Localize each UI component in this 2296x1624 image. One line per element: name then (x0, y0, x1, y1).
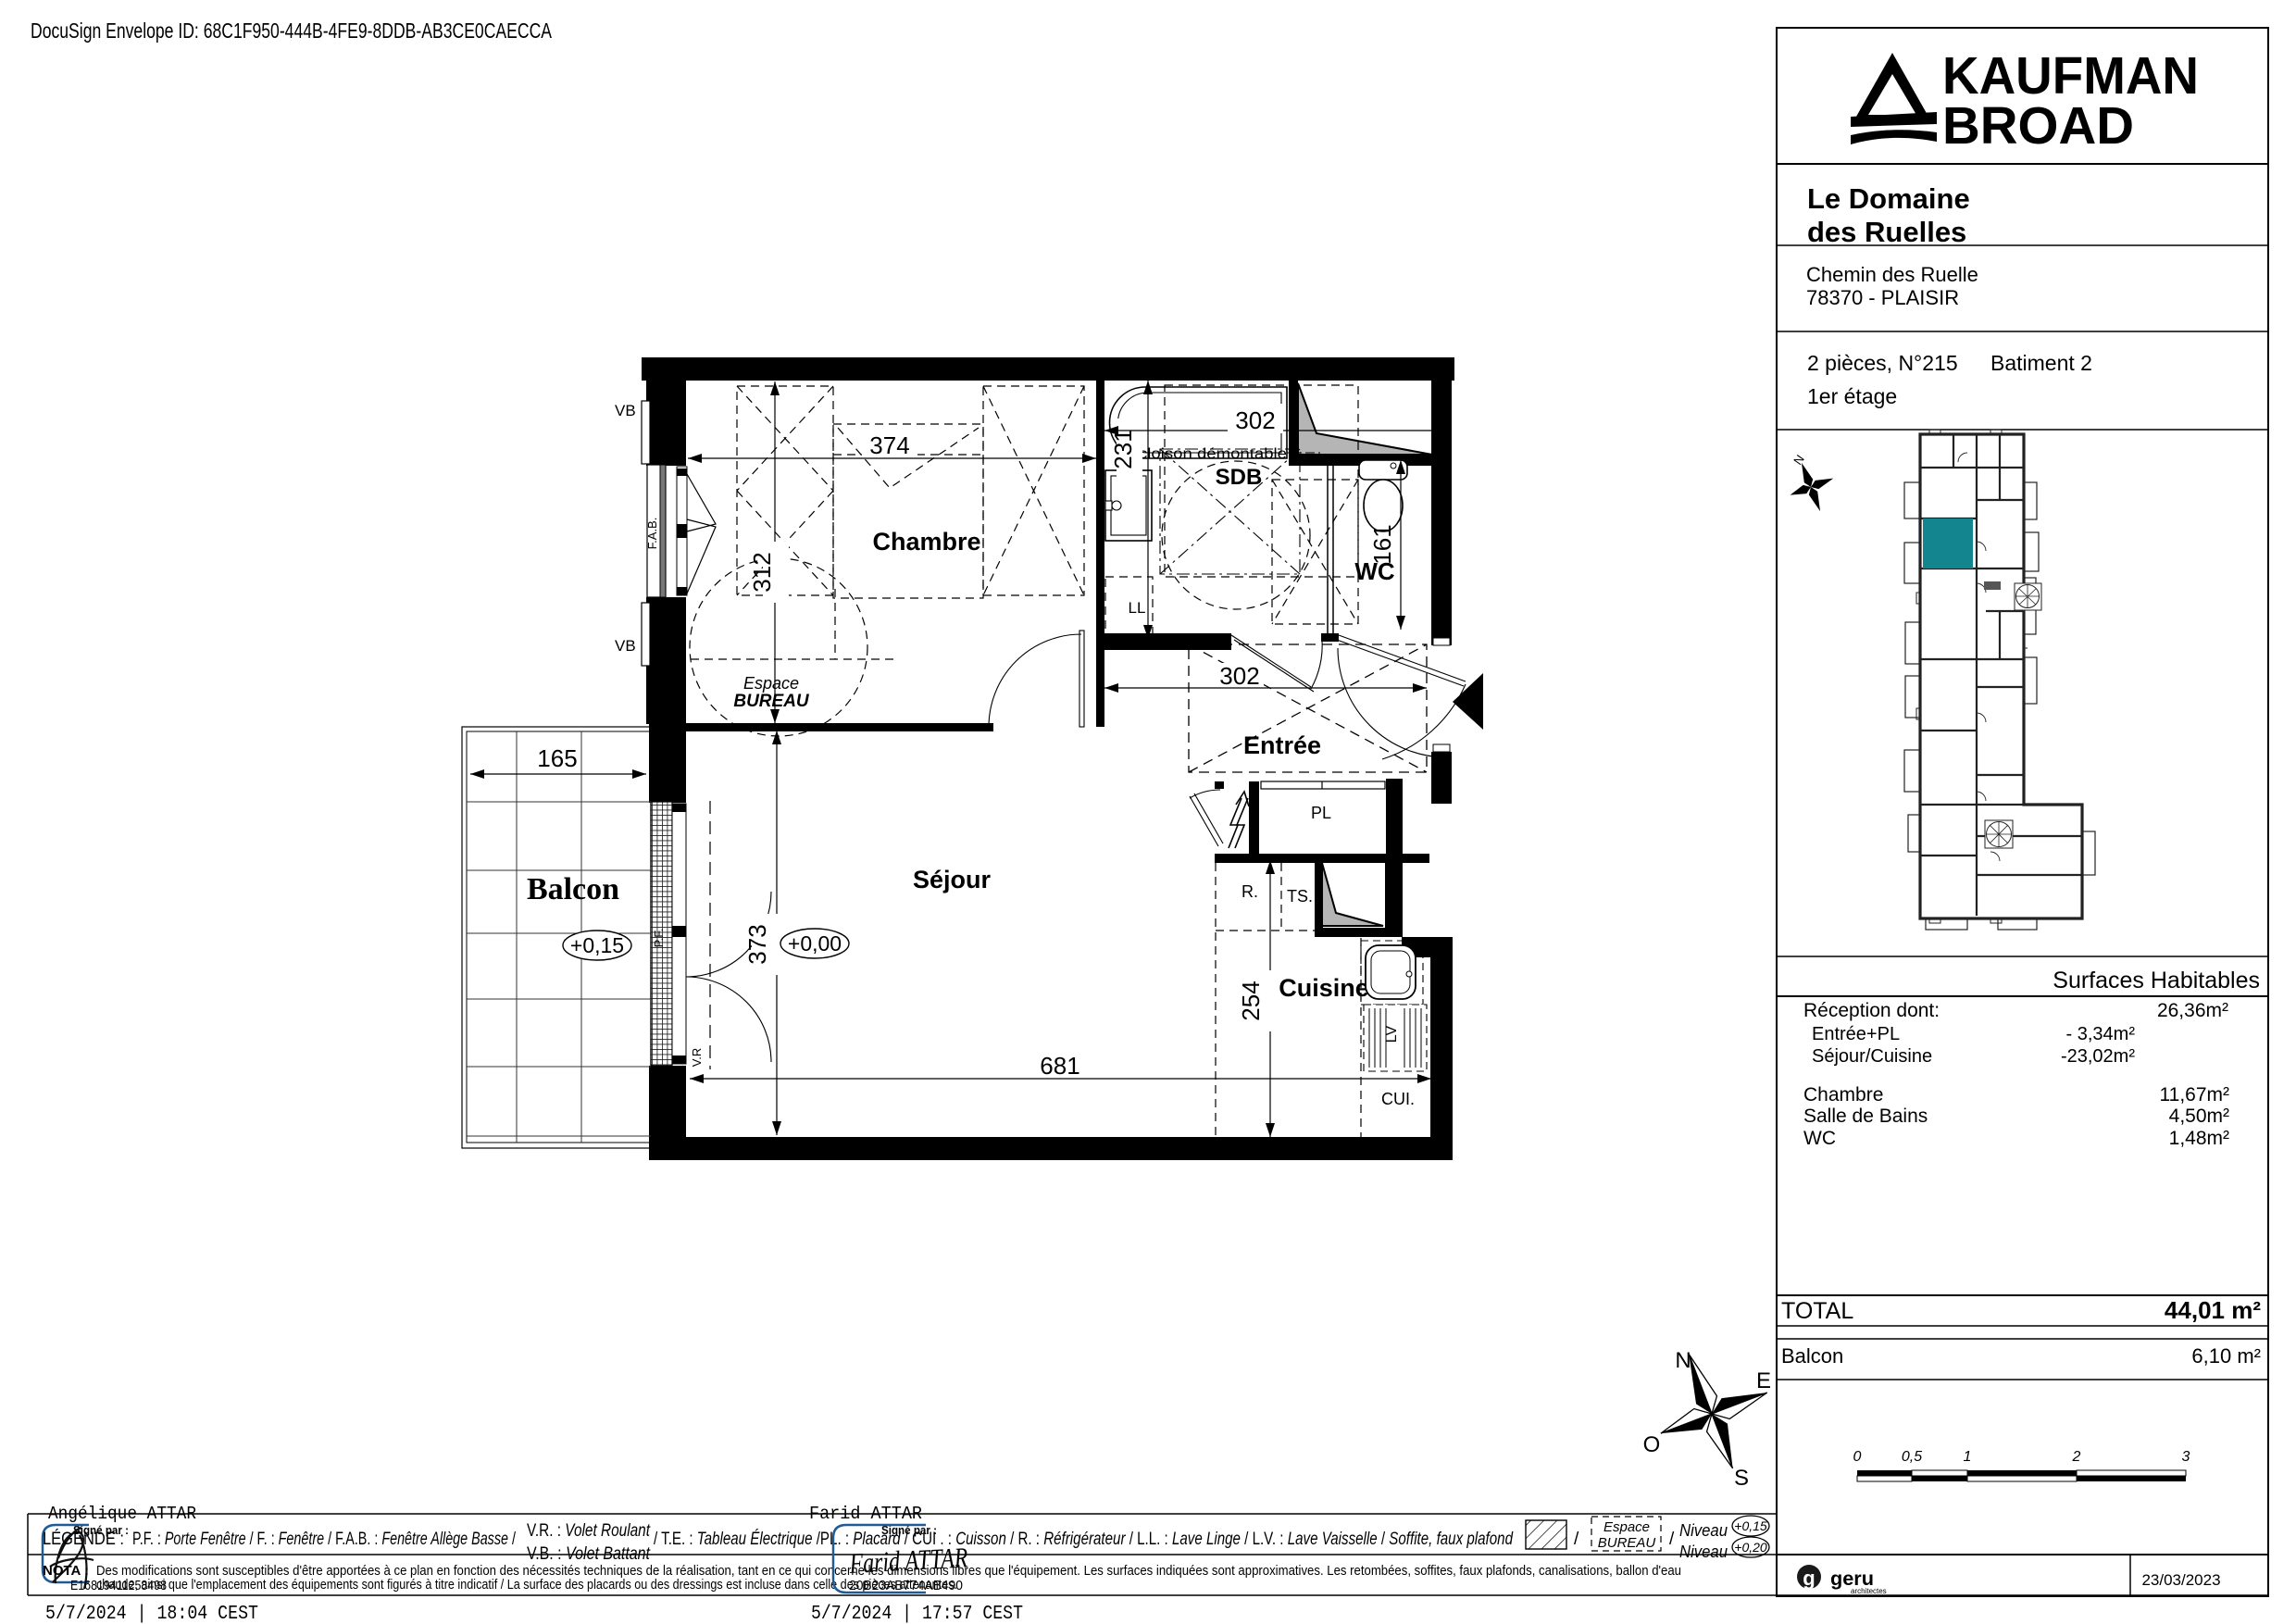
svg-text:1er étage: 1er étage (1807, 384, 1897, 408)
svg-text:681: 681 (1040, 1052, 1079, 1080)
svg-text:TS.: TS. (1287, 887, 1313, 906)
svg-text:LL: LL (1129, 599, 1146, 617)
svg-text:S: S (1734, 1466, 1749, 1491)
svg-text:231: 231 (1109, 429, 1137, 468)
svg-text:+0,20: +0,20 (1734, 1540, 1767, 1555)
svg-text:VB: VB (615, 637, 636, 655)
svg-text:Séjour: Séjour (913, 866, 992, 893)
svg-text:+0,15: +0,15 (1734, 1518, 1767, 1533)
svg-text:LÉGENDE :: LÉGENDE : (43, 1530, 124, 1549)
svg-text:373: 373 (743, 924, 771, 964)
svg-text:Chambre: Chambre (1803, 1084, 1883, 1106)
svg-text:Balcon: Balcon (527, 872, 619, 906)
svg-text:26,36m²: 26,36m² (2157, 1000, 2228, 1021)
svg-text:-23,02m²: -23,02m² (2061, 1046, 2135, 1067)
svg-text:- 3,34m²: - 3,34m² (2066, 1024, 2136, 1044)
svg-text:Farid ATTAR: Farid ATTAR (848, 1541, 968, 1580)
svg-text:BUREAU: BUREAU (1598, 1535, 1656, 1551)
svg-text:Espace: Espace (1603, 1519, 1650, 1535)
svg-text:NOTA :: NOTA : (43, 1563, 89, 1579)
svg-text:N: N (1675, 1348, 1691, 1373)
svg-text:Farid ATTAR: Farid ATTAR (809, 1504, 922, 1524)
svg-text:architectes: architectes (1851, 1587, 1887, 1595)
svg-text:5/7/2024 | 18:04 CEST: 5/7/2024 | 18:04 CEST (45, 1604, 258, 1624)
svg-text:Batiment 2: Batiment 2 (1990, 351, 2092, 375)
svg-text:V.B. : Volet Battant: V.B. : Volet Battant (527, 1544, 651, 1564)
svg-text:374: 374 (869, 431, 909, 459)
svg-text:+0,00: +0,00 (788, 931, 842, 956)
svg-text:23/03/2023: 23/03/2023 (2141, 1571, 2220, 1589)
svg-text:5/7/2024 | 17:57 CEST: 5/7/2024 | 17:57 CEST (811, 1604, 1023, 1624)
svg-text:2: 2 (2072, 1449, 2081, 1465)
svg-text:des Ruelles: des Ruelles (1807, 216, 1966, 248)
svg-text:4,50m²: 4,50m² (2169, 1106, 2229, 1127)
svg-text:6,10 m²: 6,10 m² (2191, 1344, 2261, 1368)
svg-text:Balcon: Balcon (1781, 1344, 1843, 1368)
svg-text:0: 0 (1853, 1449, 1862, 1465)
svg-text:BUREAU: BUREAU (733, 692, 810, 711)
svg-text:TOTAL: TOTAL (1781, 1298, 1853, 1324)
svg-text:DocuSign Envelope ID: 68C1F950: DocuSign Envelope ID: 68C1F950-444B-4FE9… (31, 19, 552, 43)
svg-text:Niveau: Niveau (1679, 1543, 1728, 1561)
svg-text:0,5: 0,5 (1902, 1449, 1922, 1465)
svg-text:20B23AB774AB490: 20B23AB774AB490 (849, 1578, 963, 1593)
svg-text:312: 312 (748, 552, 776, 592)
svg-text:Le Domaine: Le Domaine (1807, 182, 1970, 215)
svg-text:VB: VB (615, 402, 636, 419)
svg-text:V.R. : Volet Roulant: V.R. : Volet Roulant (527, 1521, 651, 1541)
svg-text:Niveau: Niveau (1679, 1521, 1728, 1540)
svg-text:PL: PL (1311, 804, 1331, 822)
svg-text:11,67m²: 11,67m² (2160, 1084, 2229, 1106)
svg-text:44,01 m²: 44,01 m² (2165, 1296, 2261, 1324)
svg-text:V.R: V.R (690, 1048, 704, 1067)
svg-text:SDB: SDB (1216, 465, 1263, 490)
svg-text:Espace: Espace (743, 674, 799, 693)
svg-text:78370 - PLAISIR: 78370 - PLAISIR (1806, 286, 1959, 309)
svg-text:Entrée+PL: Entrée+PL (1812, 1024, 1900, 1044)
svg-text:1,48m²: 1,48m² (2169, 1128, 2229, 1149)
svg-text:Séjour/Cuisine: Séjour/Cuisine (1812, 1046, 1932, 1067)
svg-text:254: 254 (1237, 981, 1265, 1020)
svg-text:R.: R. (1242, 882, 1258, 901)
svg-text:g: g (1803, 1567, 1815, 1590)
svg-text:chaude, ainsi que l'emplacemen: chaude, ainsi que l'emplacement des équi… (96, 1577, 957, 1593)
svg-text:Entrée: Entrée (1243, 731, 1321, 759)
svg-text:CUI.: CUI. (1381, 1090, 1415, 1108)
svg-text:/ T.E. : Tableau Électrique /: / T.E. : Tableau Électrique /PL. : Placa… (654, 1530, 1514, 1549)
svg-text:2 pièces, N°215: 2 pièces, N°215 (1807, 351, 1958, 375)
svg-text:+0,15: +0,15 (570, 933, 624, 957)
svg-text:302: 302 (1235, 406, 1275, 434)
svg-text:Surfaces Habitables: Surfaces Habitables (2053, 968, 2260, 993)
svg-text:WC: WC (1803, 1128, 1836, 1149)
svg-text:BROAD: BROAD (1942, 96, 2134, 156)
svg-text:165: 165 (537, 744, 577, 772)
svg-text:302: 302 (1219, 662, 1259, 690)
svg-text:F.A.B.: F.A.B. (645, 518, 659, 550)
svg-text:P.F.: P.F. (652, 929, 666, 948)
svg-text:cloison démontable: cloison démontable (1139, 446, 1287, 462)
svg-text:/: / (1574, 1530, 1579, 1549)
svg-text:E: E (1756, 1368, 1771, 1393)
svg-text:Réception dont:: Réception dont: (1803, 1000, 1940, 1021)
svg-text:Chambre: Chambre (872, 528, 980, 556)
svg-text:Chemin des Ruelle: Chemin des Ruelle (1806, 263, 1978, 286)
svg-text:3: 3 (2182, 1449, 2190, 1465)
svg-text:Salle de Bains: Salle de Bains (1803, 1106, 1928, 1127)
svg-text:O: O (1643, 1432, 1661, 1457)
svg-text:161: 161 (1368, 524, 1396, 564)
svg-text:Angélique ATTAR: Angélique ATTAR (48, 1504, 196, 1524)
svg-text:/: / (1669, 1530, 1675, 1549)
svg-text:Cuisine: Cuisine (1279, 974, 1369, 1002)
svg-text:P.F. : Porte Fenêtre / F. :: P.F. : Porte Fenêtre / F. : Fenêtre / F.… (132, 1530, 517, 1549)
svg-text:LV: LV (1384, 1025, 1400, 1043)
svg-text:1: 1 (1964, 1449, 1972, 1465)
